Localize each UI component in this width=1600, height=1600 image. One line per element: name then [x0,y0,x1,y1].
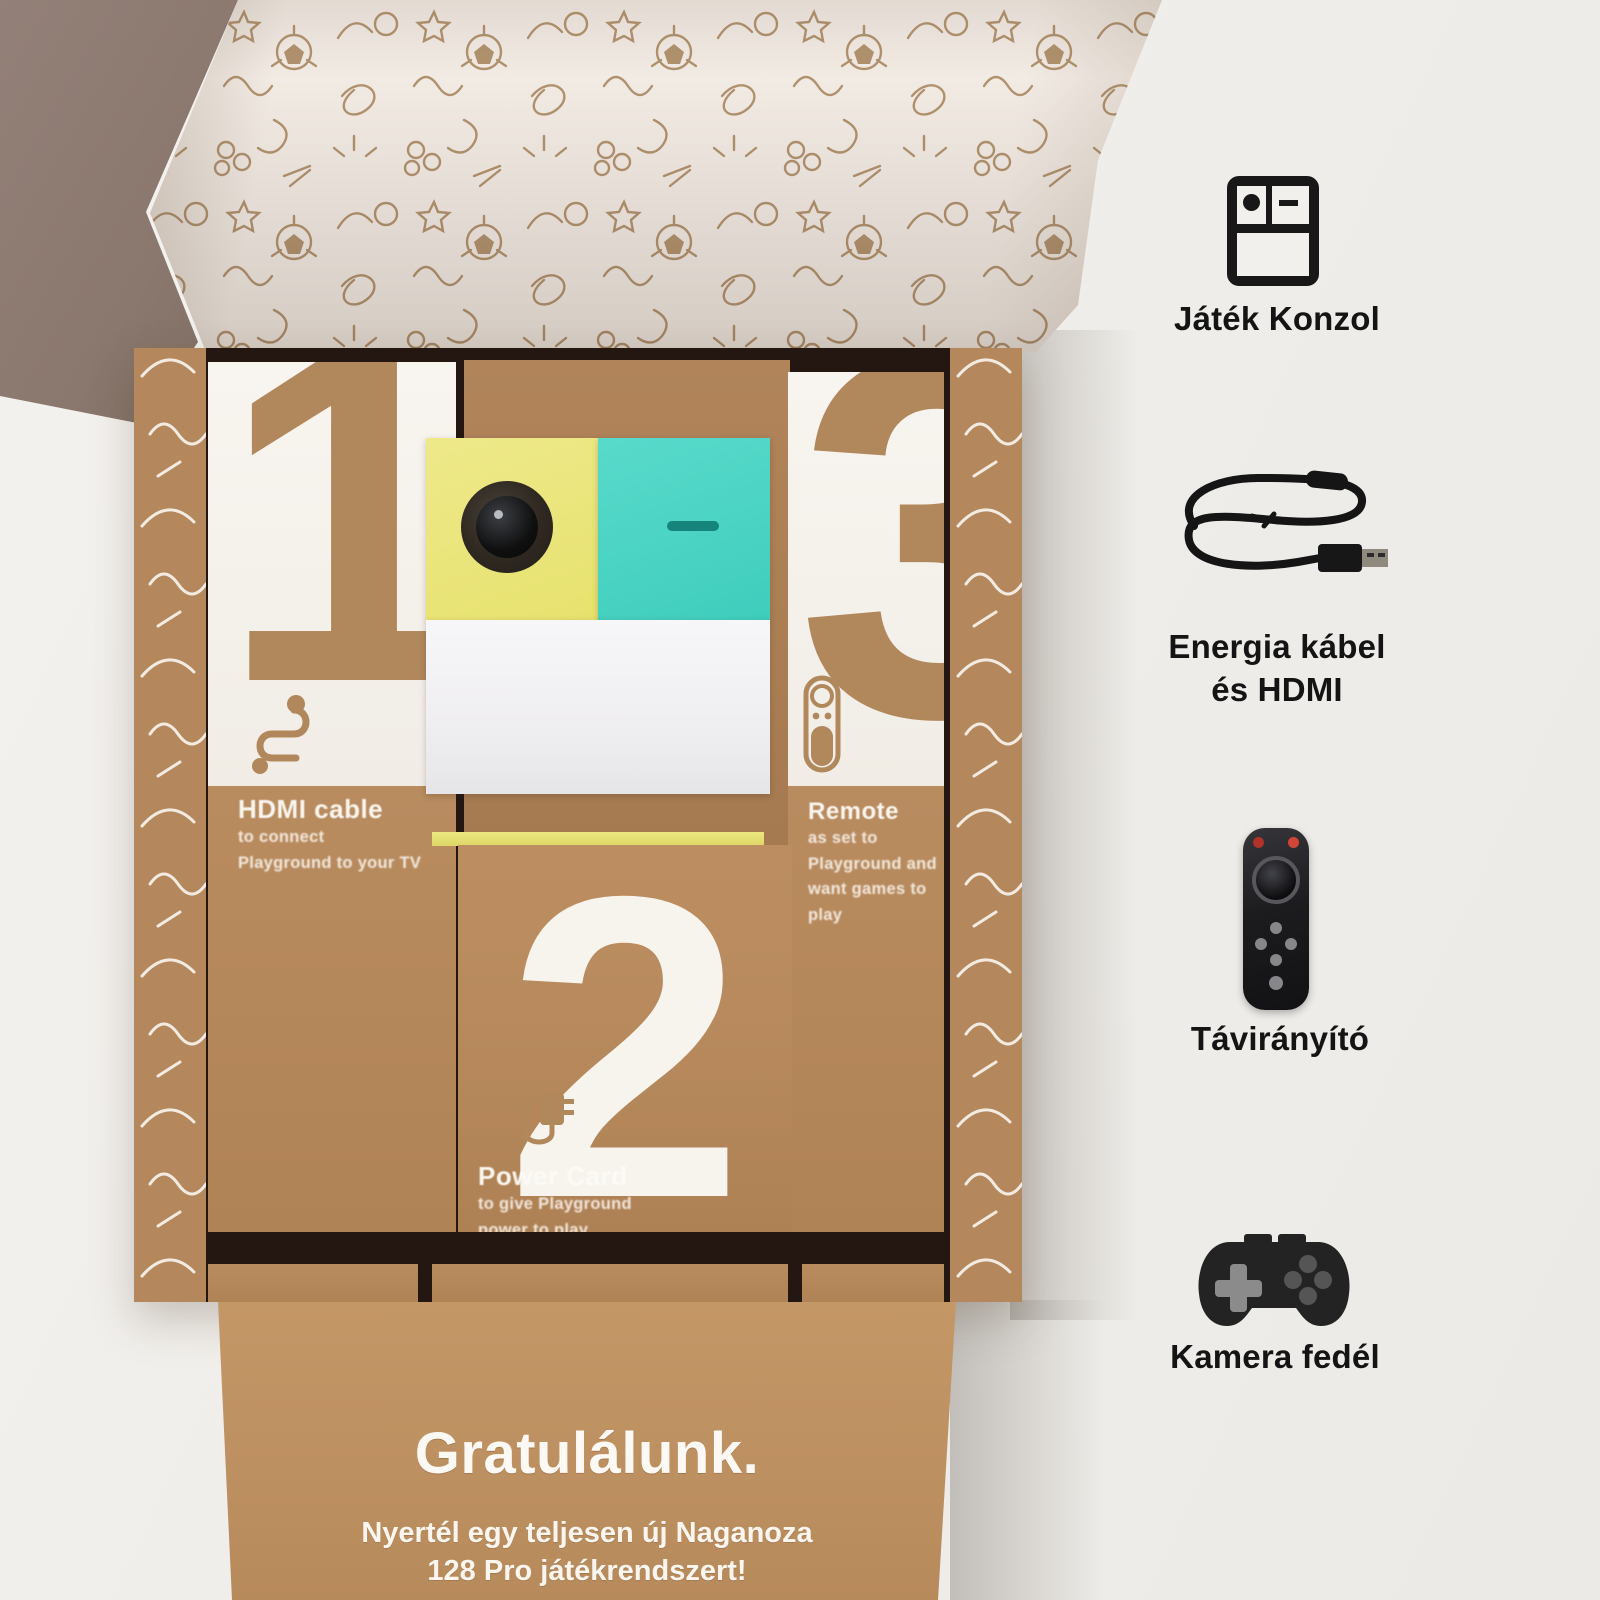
camera-lens-glass [476,496,538,558]
compartment-3-line2: Playground and [808,852,938,878]
compartment-1-line2: Playground to your TV [238,851,443,877]
box-body: 1 HDMI cable to connect Playground to yo… [134,348,1022,1302]
congrats-headline: Gratulálunk. [216,1420,958,1487]
console-yellow-block [426,438,598,620]
console-white-base [426,620,770,794]
console-icon-cell-slot [1272,186,1309,224]
front-flap: Gratulálunk. Nyertél egy teljesen új Nag… [216,1302,958,1600]
unboxing-scene: 1 HDMI cable to connect Playground to yo… [0,0,1600,1600]
box-edge-strip-right [950,348,1022,1302]
doodle-pattern-white-right [950,348,1022,1302]
console-icon-dot [1243,194,1260,211]
compartment-1-heading: HDMI cable [238,794,443,825]
console-card-slot [667,521,719,531]
remote-btn-extra [1269,976,1283,990]
compartment-1-panel: 1 [208,362,456,786]
remote-red-dot-right [1288,837,1299,848]
remote-btn-right [1285,938,1297,950]
gamepad-icon [1194,1226,1354,1338]
lid-inner-doodle-flap [134,0,1174,353]
compartment-1-print: HDMI cable to connect Playground to your… [238,794,443,876]
congrats-sub2: 128 Pro játékrendszert! [216,1552,958,1590]
legend-label-remote: Távirányító [1155,1020,1405,1058]
console-icon-cell-base [1237,233,1309,276]
camera-lens-glint [494,510,503,519]
remote-lens [1252,856,1300,904]
legend-label-cable-line2: és HDMI [1157,671,1397,709]
remote-btn-down [1270,954,1282,966]
console-teal-block [598,438,770,620]
legend-label-console: Játék Konzol [1157,300,1397,338]
shadow-right-of-box [1010,330,1180,1320]
box-edge-strip-left [134,348,206,1302]
power-cord-icon [510,1089,574,1151]
remote-btn-up [1270,922,1282,934]
compartment-3-panel: 3 [788,372,944,786]
compartment-2-line2: power to play [478,1218,768,1232]
doodle-pattern-brown [134,0,1174,353]
game-console-icon [1227,176,1319,286]
compartment-3-label-area: Remote as set to Playground and want gam… [788,786,944,1232]
compartment-2-heading: Power Card [478,1161,768,1192]
console-icon-cell-camera [1237,186,1266,224]
remote-red-dot-left [1253,837,1264,848]
congrats-sub1: Nyertél egy teljesen új Naganoza [216,1514,958,1552]
remote-btn-left [1255,938,1267,950]
compartment-1-line1: to connect [238,825,443,851]
hdmi-cable-icon [244,692,316,778]
compartment-3-line1: as set to [808,826,938,852]
compartment-2-powerbox: 2 Power Card to give Playground power to… [458,845,792,1232]
console-icon-dash [1279,200,1298,206]
shadow-right-of-flap [950,1300,1170,1600]
compartment-3-line3: want games to play [808,877,938,928]
console-bottom-edge [432,832,764,846]
inner-box-bottom-1 [208,1264,418,1302]
console-camera-lens [461,481,553,573]
inner-box-bottom-2 [432,1264,788,1302]
remote-icon-print [800,674,844,774]
compartment-2-print: Power Card to give Playground power to p… [478,1161,768,1232]
compartment-3-heading: Remote [808,798,938,826]
legend-label-camera-cover: Kamera fedél [1155,1338,1395,1376]
doodle-pattern-white-left [134,348,206,1302]
inner-box-bottom-3 [802,1264,944,1302]
compartment-2-line1: to give Playground [478,1192,768,1218]
remote-control-image [1243,828,1309,1010]
compartment-1-label-area: HDMI cable to connect Playground to your… [208,786,456,1232]
legend-label-cable-line1: Energia kábel [1157,628,1397,666]
power-hdmi-cable-image [1156,462,1408,614]
compartment-3-print: Remote as set to Playground and want gam… [808,798,938,928]
